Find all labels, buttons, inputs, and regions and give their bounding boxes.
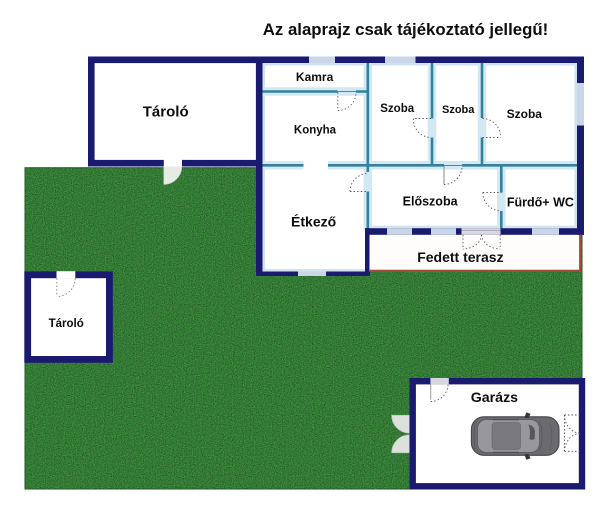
svg-text:Tároló: Tároló xyxy=(143,104,189,121)
svg-text:Tároló: Tároló xyxy=(49,318,84,330)
svg-text:Garázs: Garázs xyxy=(471,390,518,406)
svg-text:Fürdő+ WC: Fürdő+ WC xyxy=(507,195,574,209)
svg-text:Előszoba: Előszoba xyxy=(403,195,459,209)
svg-text:Kamra: Kamra xyxy=(296,70,334,84)
svg-text:Az alaprajz csak tájékoztató j: Az alaprajz csak tájékoztató jellegű! xyxy=(263,20,548,39)
svg-text:Szoba: Szoba xyxy=(507,107,543,121)
svg-text:Szoba: Szoba xyxy=(442,104,475,116)
svg-text:Szoba: Szoba xyxy=(380,103,414,115)
svg-text:Fedett terasz: Fedett terasz xyxy=(417,249,503,265)
svg-text:Konyha: Konyha xyxy=(294,125,337,137)
svg-text:Étkező: Étkező xyxy=(291,214,336,230)
